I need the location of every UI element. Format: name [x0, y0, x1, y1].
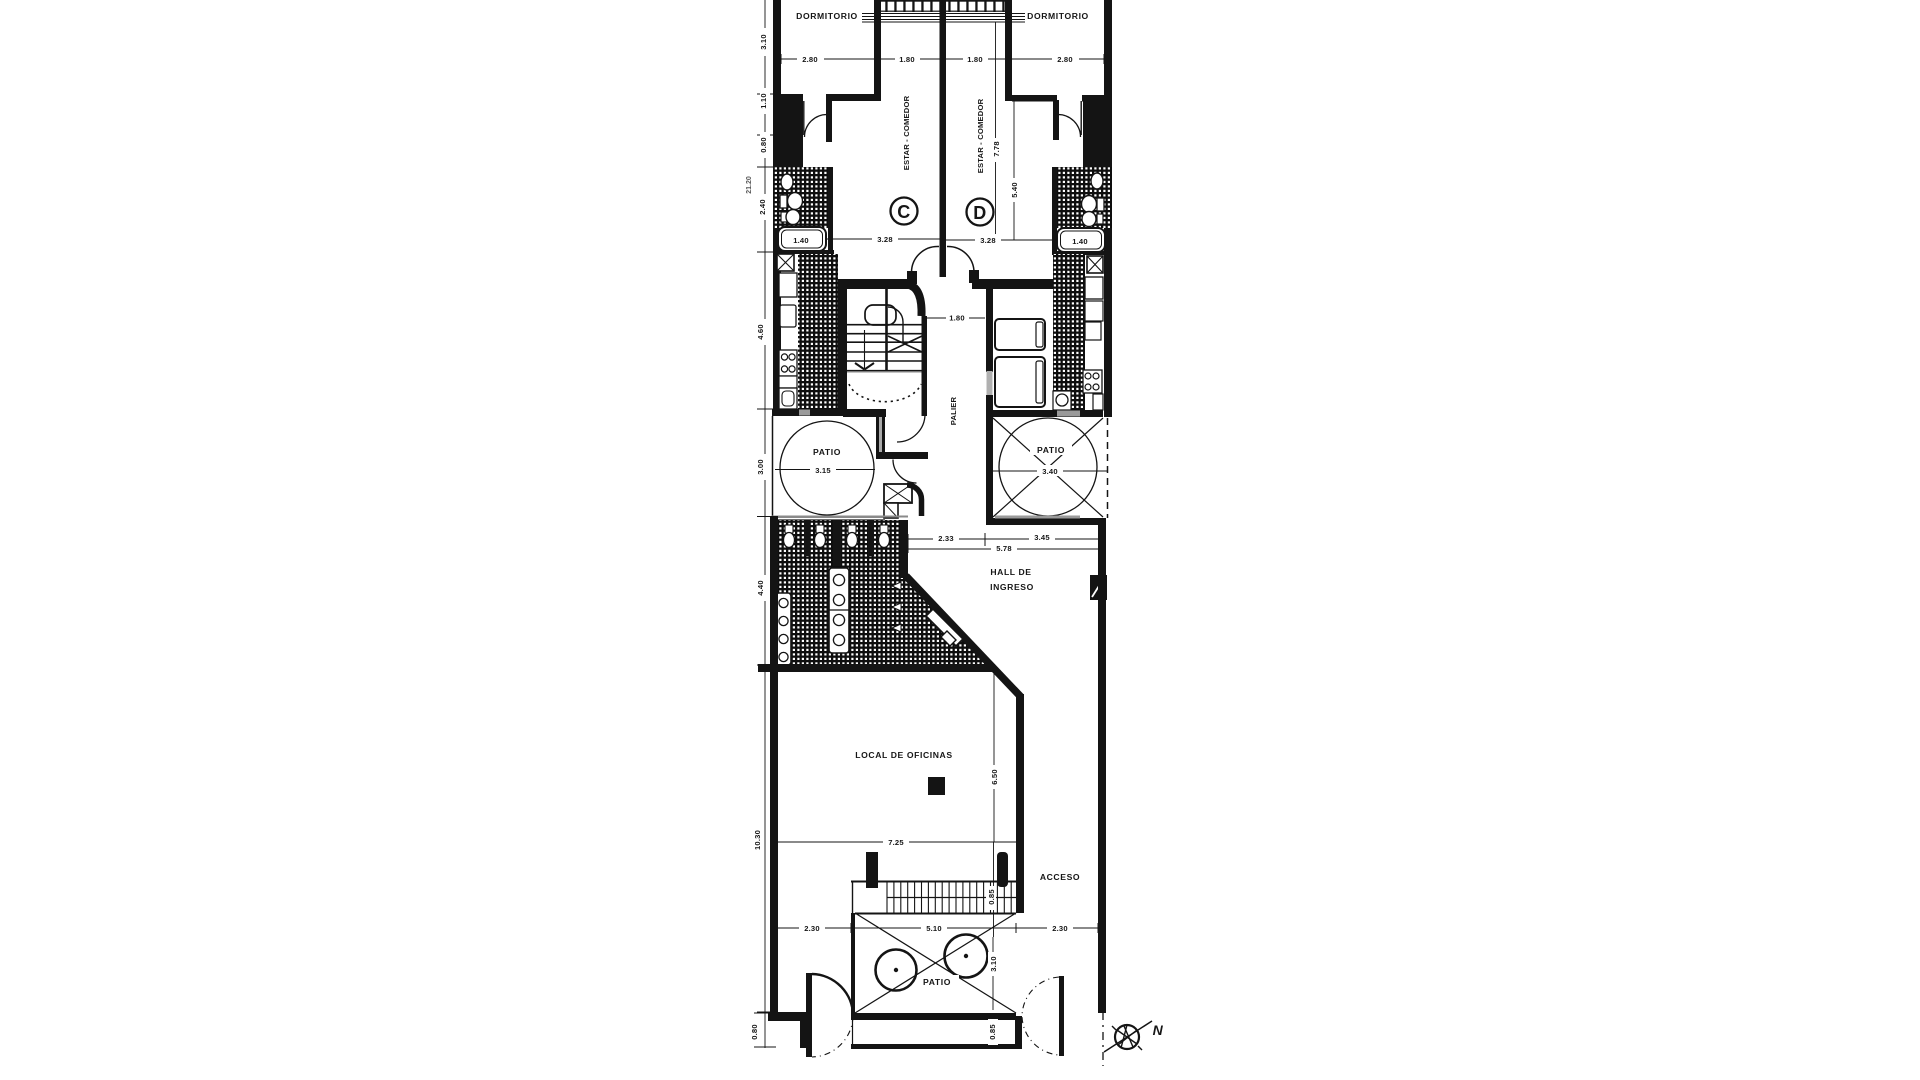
svg-text:0.85: 0.85 [987, 889, 996, 905]
svg-text:PATIO: PATIO [1037, 445, 1065, 455]
svg-text:0.85: 0.85 [988, 1024, 997, 1040]
svg-text:5.78: 5.78 [996, 544, 1012, 553]
svg-text:3.10: 3.10 [759, 34, 768, 50]
svg-text:2.80: 2.80 [802, 55, 818, 64]
svg-text:1.40: 1.40 [1072, 237, 1088, 246]
svg-text:3.00: 3.00 [756, 459, 765, 475]
svg-text:6.50: 6.50 [990, 769, 999, 785]
svg-text:N: N [1153, 1022, 1164, 1038]
svg-text:21.20: 21.20 [746, 176, 753, 194]
svg-text:5.10: 5.10 [926, 924, 942, 933]
svg-text:D: D [973, 203, 987, 223]
svg-text:1.10: 1.10 [759, 93, 768, 109]
svg-text:7.78: 7.78 [992, 141, 1001, 157]
svg-text:3.45: 3.45 [1034, 533, 1050, 542]
svg-text:3.10: 3.10 [989, 956, 998, 972]
svg-text:3.28: 3.28 [877, 235, 893, 244]
svg-text:1.80: 1.80 [899, 55, 915, 64]
svg-text:1.80: 1.80 [949, 314, 965, 323]
svg-text:7.25: 7.25 [888, 838, 904, 847]
svg-text:2.30: 2.30 [804, 924, 820, 933]
svg-text:PATIO: PATIO [813, 447, 841, 457]
svg-text:2.33: 2.33 [938, 534, 954, 543]
svg-text:5.40: 5.40 [1010, 182, 1019, 198]
svg-text:DORMITORIO: DORMITORIO [1027, 11, 1089, 21]
svg-text:3.15: 3.15 [815, 466, 831, 475]
svg-text:HALL DE: HALL DE [990, 567, 1031, 577]
svg-text:ACCESO: ACCESO [1040, 872, 1080, 882]
svg-text:0.80: 0.80 [750, 1024, 759, 1040]
svg-text:2.40: 2.40 [758, 199, 767, 215]
svg-text:2.80: 2.80 [1057, 55, 1073, 64]
svg-text:1.80: 1.80 [967, 55, 983, 64]
svg-text:ESTAR - COMEDOR: ESTAR - COMEDOR [902, 95, 911, 170]
svg-text:10.30: 10.30 [753, 830, 762, 850]
svg-text:ESTAR - COMEDOR: ESTAR - COMEDOR [976, 98, 985, 173]
svg-text:4.40: 4.40 [756, 580, 765, 596]
svg-text:LOCAL DE OFICINAS: LOCAL DE OFICINAS [855, 750, 952, 760]
svg-text:2.30: 2.30 [1052, 924, 1068, 933]
svg-text:0.80: 0.80 [759, 137, 768, 153]
svg-text:DORMITORIO: DORMITORIO [796, 11, 858, 21]
svg-text:4.60: 4.60 [756, 324, 765, 340]
svg-text:INGRESO: INGRESO [990, 582, 1034, 592]
svg-text:C: C [897, 202, 911, 222]
svg-text:3.40: 3.40 [1042, 467, 1058, 476]
svg-text:PATIO: PATIO [923, 977, 951, 987]
svg-text:PALIER: PALIER [949, 396, 958, 425]
svg-text:1.40: 1.40 [793, 236, 809, 245]
svg-text:3.28: 3.28 [980, 236, 996, 245]
